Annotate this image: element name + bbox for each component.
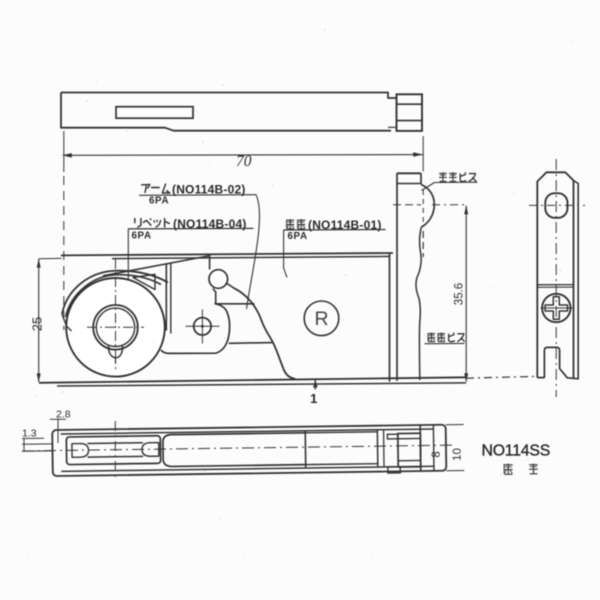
svg-text:6PA: 6PA bbox=[288, 231, 308, 242]
svg-text:6PA: 6PA bbox=[149, 196, 169, 207]
svg-text:R: R bbox=[314, 308, 328, 330]
svg-text:70: 70 bbox=[236, 153, 252, 170]
svg-text:35.6: 35.6 bbox=[454, 283, 466, 305]
svg-text:8: 8 bbox=[431, 451, 443, 458]
svg-text:1: 1 bbox=[310, 391, 317, 406]
svg-text:NO114SS: NO114SS bbox=[482, 443, 551, 460]
svg-text:10: 10 bbox=[451, 448, 463, 461]
svg-text:25: 25 bbox=[30, 317, 45, 331]
svg-text:6PA: 6PA bbox=[132, 230, 152, 241]
svg-text:1.3: 1.3 bbox=[22, 428, 37, 440]
